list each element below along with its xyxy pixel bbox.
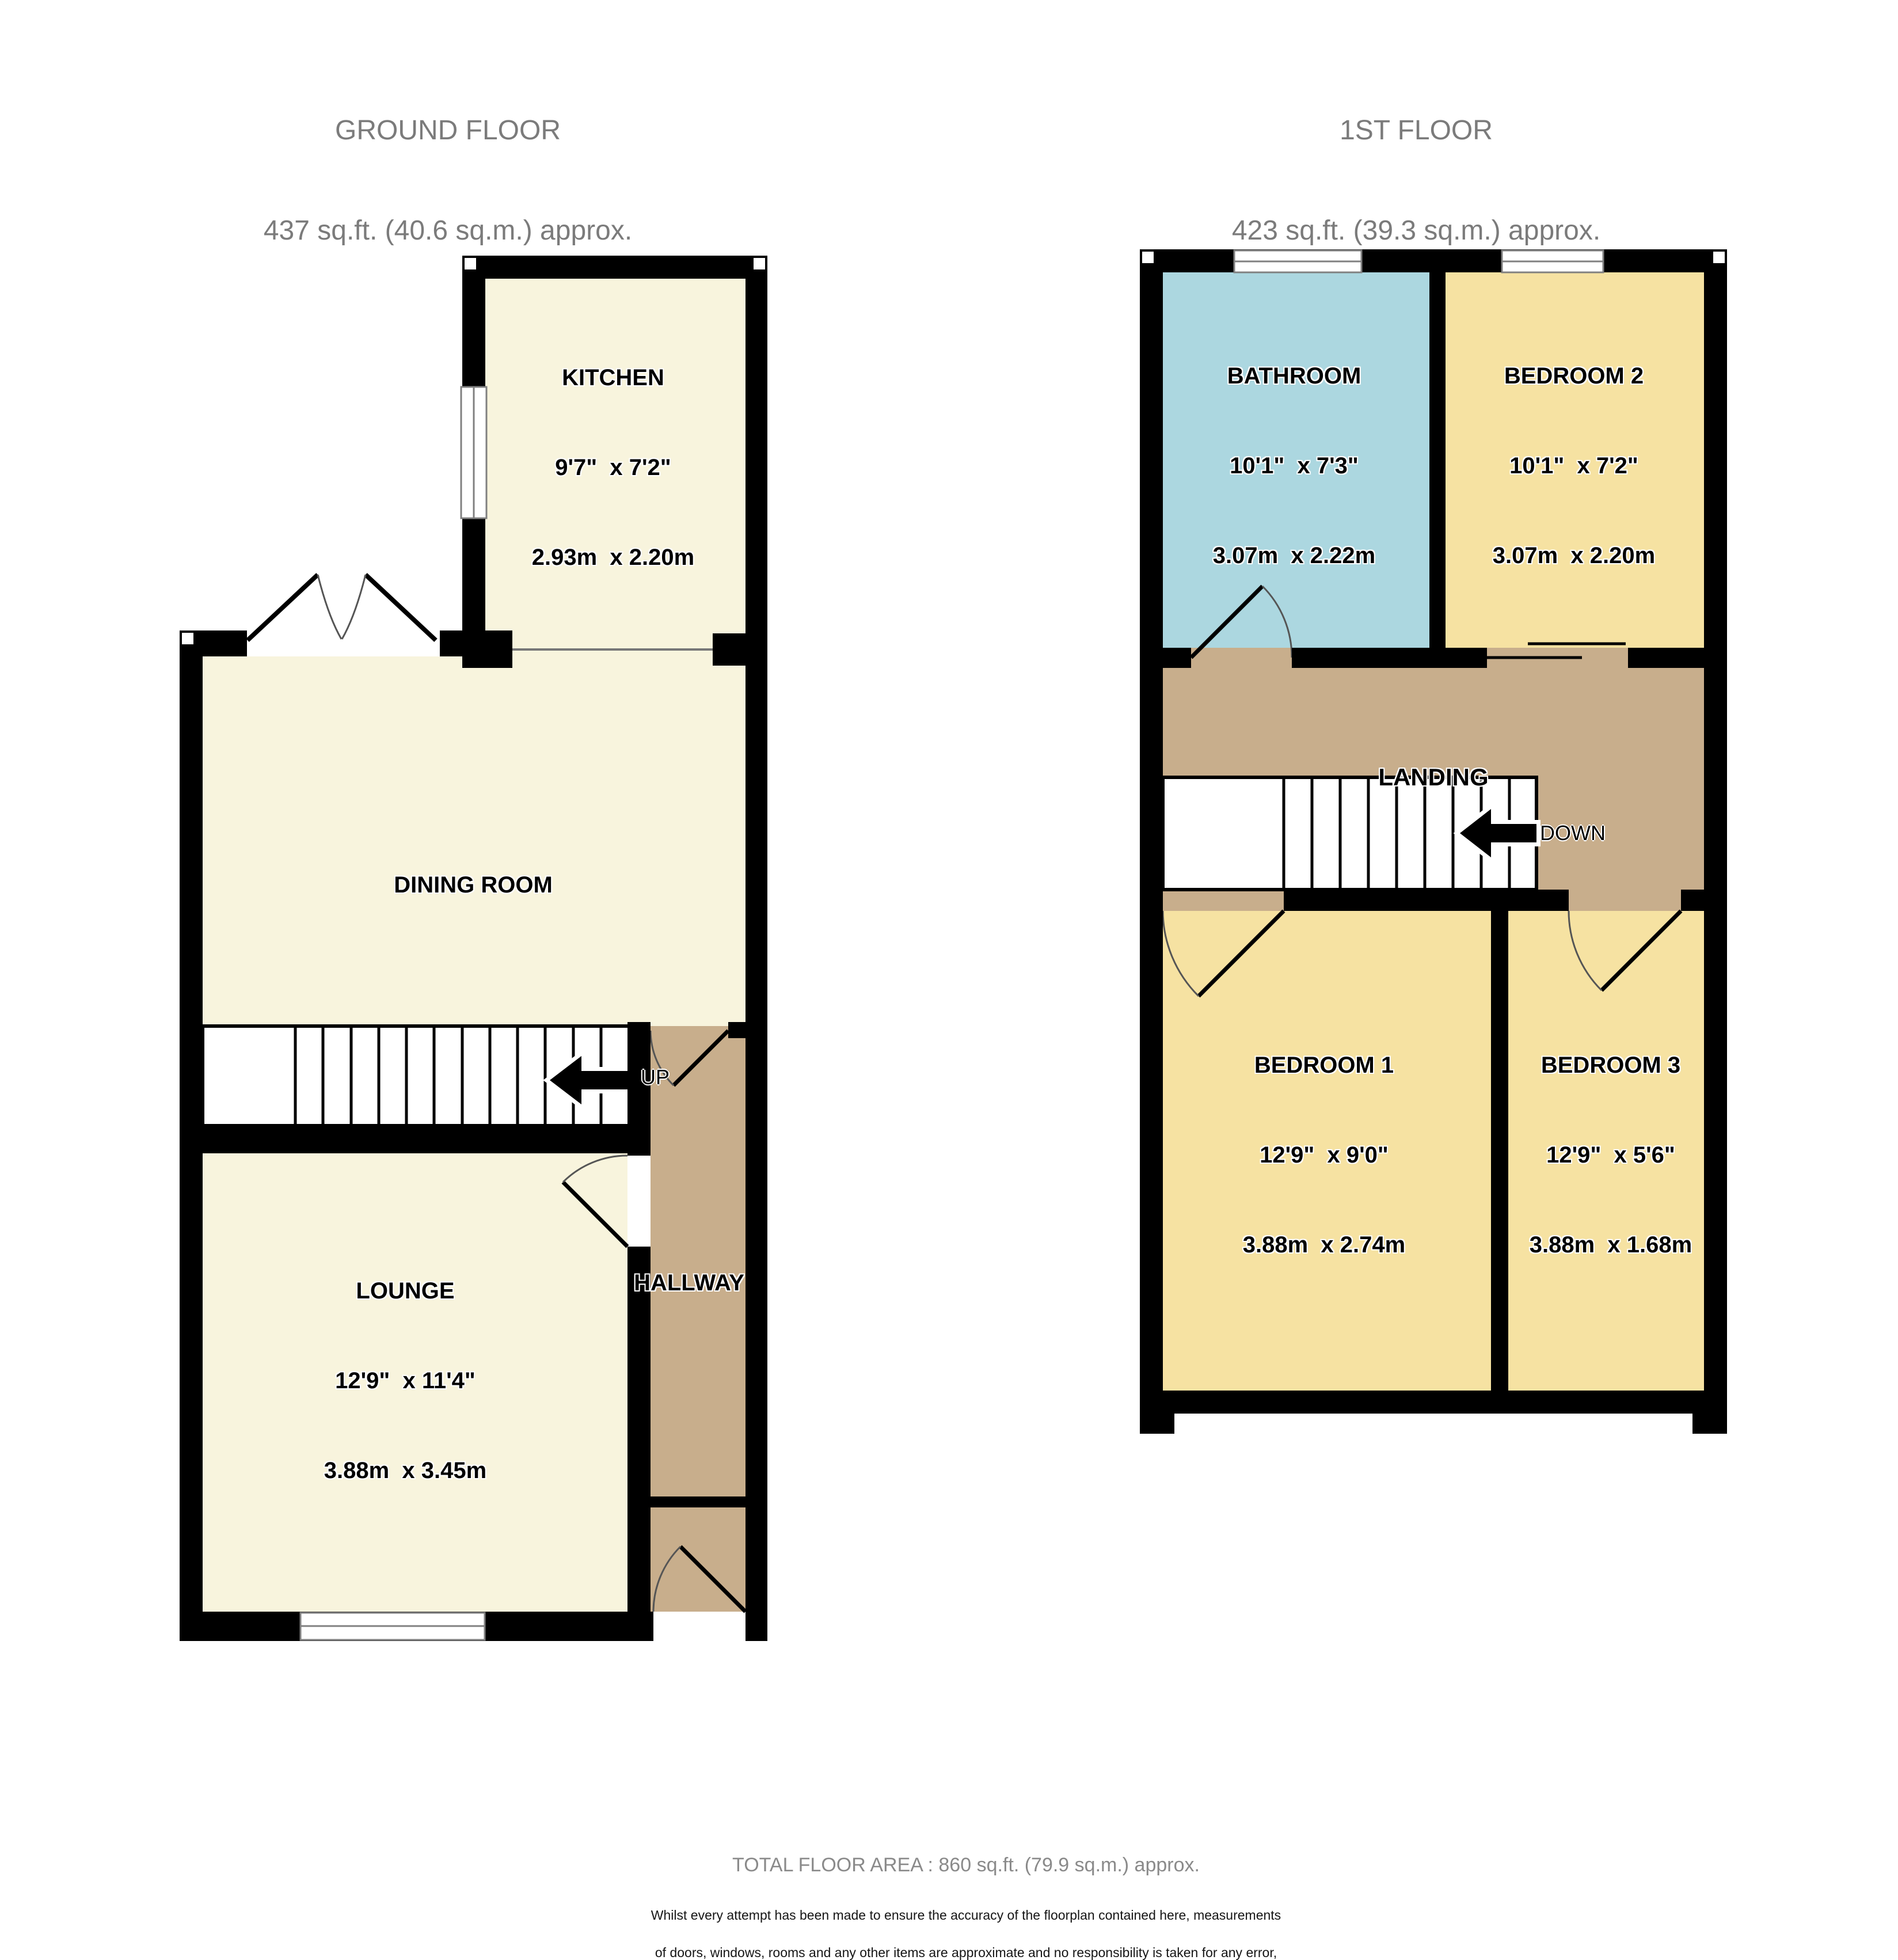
kitchen-label: KITCHEN 9'7" x 7'2" 2.93m x 2.20m — [532, 303, 694, 632]
first-floor-area: 423 sq.ft. (39.3 sq.m.) approx. — [1232, 214, 1600, 248]
up-label: UP — [641, 1066, 670, 1088]
kitchen-window — [461, 387, 486, 518]
disclaimer-line: Whilst every attempt has been made to en… — [648, 1907, 1285, 1924]
lounge-window — [301, 1613, 485, 1640]
ground-floor-header: GROUND FLOOR 437 sq.ft. (40.6 sq.m.) app… — [264, 47, 632, 314]
hallway-label: HALLWAY — [634, 1208, 744, 1358]
down-label: DOWN — [1540, 822, 1606, 844]
landing-label: LANDING — [1378, 702, 1488, 852]
bedroom2-label: BEDROOM 2 10'1" x 7'2" 3.07m x 2.20m — [1493, 301, 1655, 630]
first-floor-header: 1ST FLOOR 423 sq.ft. (39.3 sq.m.) approx… — [1232, 47, 1600, 314]
disclaimer-line: of doors, windows, rooms and any other i… — [648, 1944, 1285, 1960]
bedroom1-label: BEDROOM 1 12'9" x 9'0" 3.88m x 2.74m — [1243, 990, 1405, 1320]
lounge-label: LOUNGE 12'9" x 11'4" 3.88m x 3.45m — [324, 1216, 486, 1545]
ground-floor-title: GROUND FLOOR — [264, 114, 632, 147]
bedroom3-label: BEDROOM 3 12'9" x 5'6" 3.88m x 1.68m — [1530, 990, 1692, 1320]
ground-floor-area: 437 sq.ft. (40.6 sq.m.) approx. — [264, 214, 632, 248]
first-floor-title: 1ST FLOOR — [1232, 114, 1600, 147]
ground-stairs — [203, 1026, 629, 1126]
floorplan-page: GROUND FLOOR 437 sq.ft. (40.6 sq.m.) app… — [0, 0, 1898, 1960]
total-floor-area: TOTAL FLOOR AREA : 860 sq.ft. (79.9 sq.m… — [648, 1853, 1285, 1877]
footer: TOTAL FLOOR AREA : 860 sq.ft. (79.9 sq.m… — [648, 1832, 1285, 1960]
dining-room-label: DINING ROOM — [394, 810, 553, 960]
french-doors — [248, 575, 436, 640]
bathroom-label: BATHROOM 10'1" x 7'3" 3.07m x 2.22m — [1213, 301, 1375, 630]
